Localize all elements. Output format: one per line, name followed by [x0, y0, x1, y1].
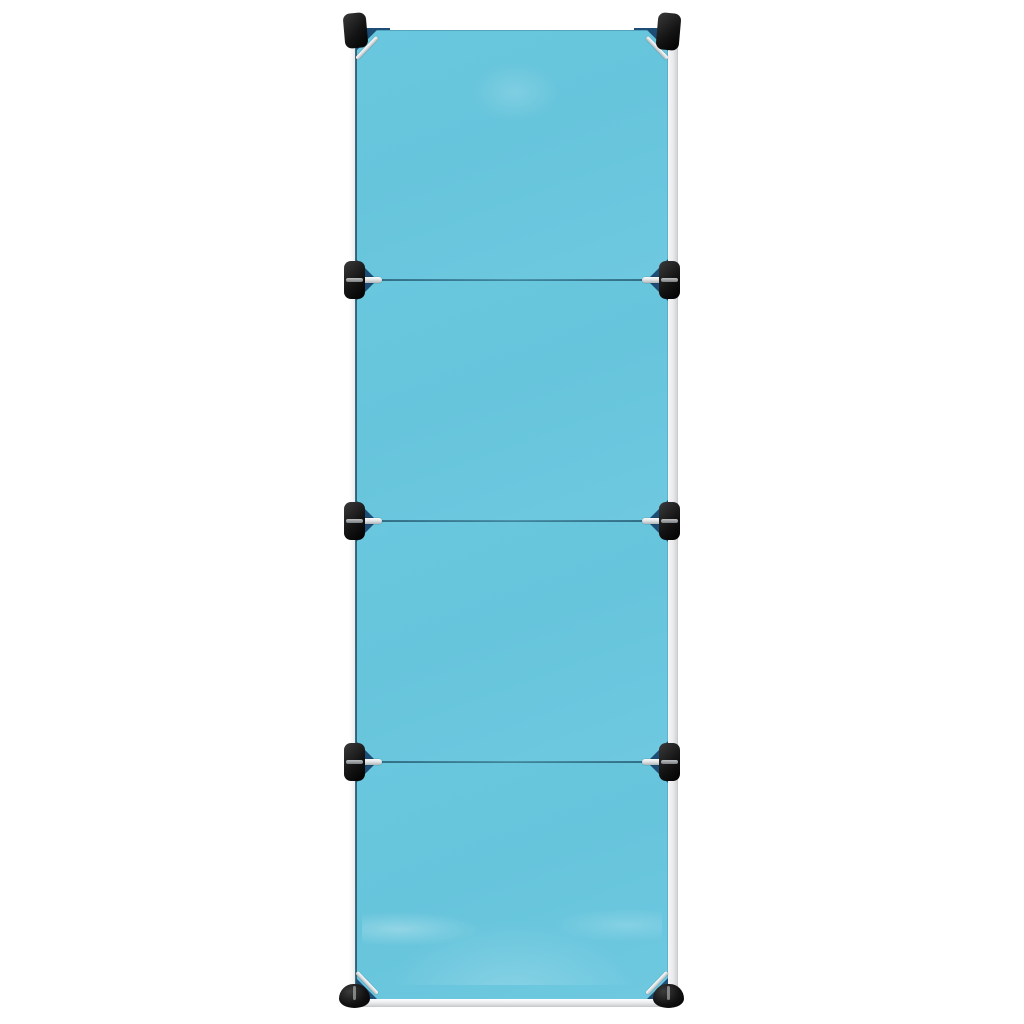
- bottom-frame-rail: [360, 999, 666, 1007]
- cube-door-4: [356, 762, 668, 999]
- foot: [653, 984, 684, 1008]
- foot: [339, 984, 370, 1008]
- connector-pin-slot: [661, 760, 678, 764]
- panel-seam: [358, 761, 666, 763]
- corner-connector: [343, 12, 369, 49]
- cube-door-1: [356, 30, 668, 280]
- connector-pin-slot: [346, 519, 363, 523]
- corner-connector: [344, 261, 365, 299]
- panel-seam: [358, 279, 666, 281]
- corner-connector: [659, 502, 680, 540]
- corner-connector: [659, 261, 680, 299]
- connector-pin-slot: [661, 519, 678, 523]
- panel-seam: [358, 520, 666, 522]
- corner-connector: [344, 502, 365, 540]
- corner-connector: [655, 12, 681, 51]
- corner-connector: [659, 743, 680, 781]
- cube-door-2: [356, 280, 668, 521]
- connector-pin-slot: [346, 278, 363, 282]
- foot-slot: [667, 986, 670, 1000]
- connector-pin-slot: [661, 278, 678, 282]
- connector-pin-slot: [346, 760, 363, 764]
- cube-door-3: [356, 521, 668, 762]
- foot-slot: [353, 986, 356, 1000]
- product-photo: [0, 0, 1024, 1024]
- corner-connector: [344, 743, 365, 781]
- cube-storage-cabinet: [0, 0, 1024, 1024]
